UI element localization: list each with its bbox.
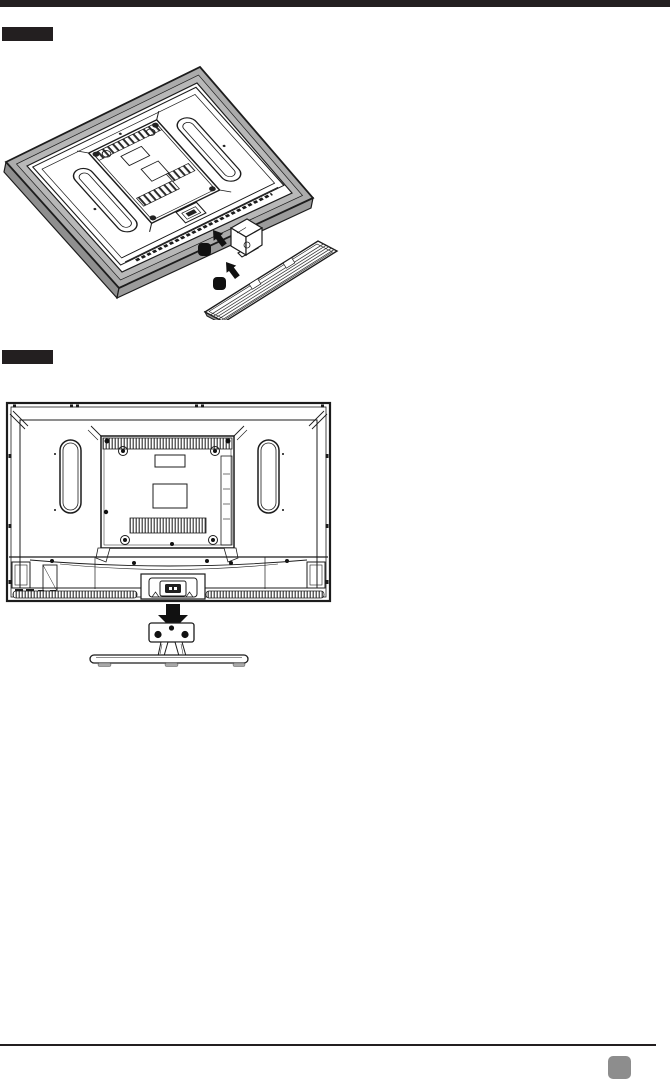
- figure-stand-assembly-rear-view: [0, 392, 340, 677]
- figure-stand-assembly-perspective: [0, 55, 340, 320]
- footer-rule: [0, 1044, 656, 1046]
- stand-bracket: [149, 623, 194, 642]
- step-label-1: [2, 27, 53, 41]
- stand-legs: [158, 642, 186, 656]
- page-number-badge: [608, 1056, 631, 1079]
- manual-page: [0, 0, 670, 1079]
- header-rule: [0, 0, 670, 7]
- step-label-2: [2, 350, 53, 364]
- stand-base: [90, 655, 248, 667]
- stand-neck: [231, 219, 262, 257]
- stand-socket: [141, 574, 205, 599]
